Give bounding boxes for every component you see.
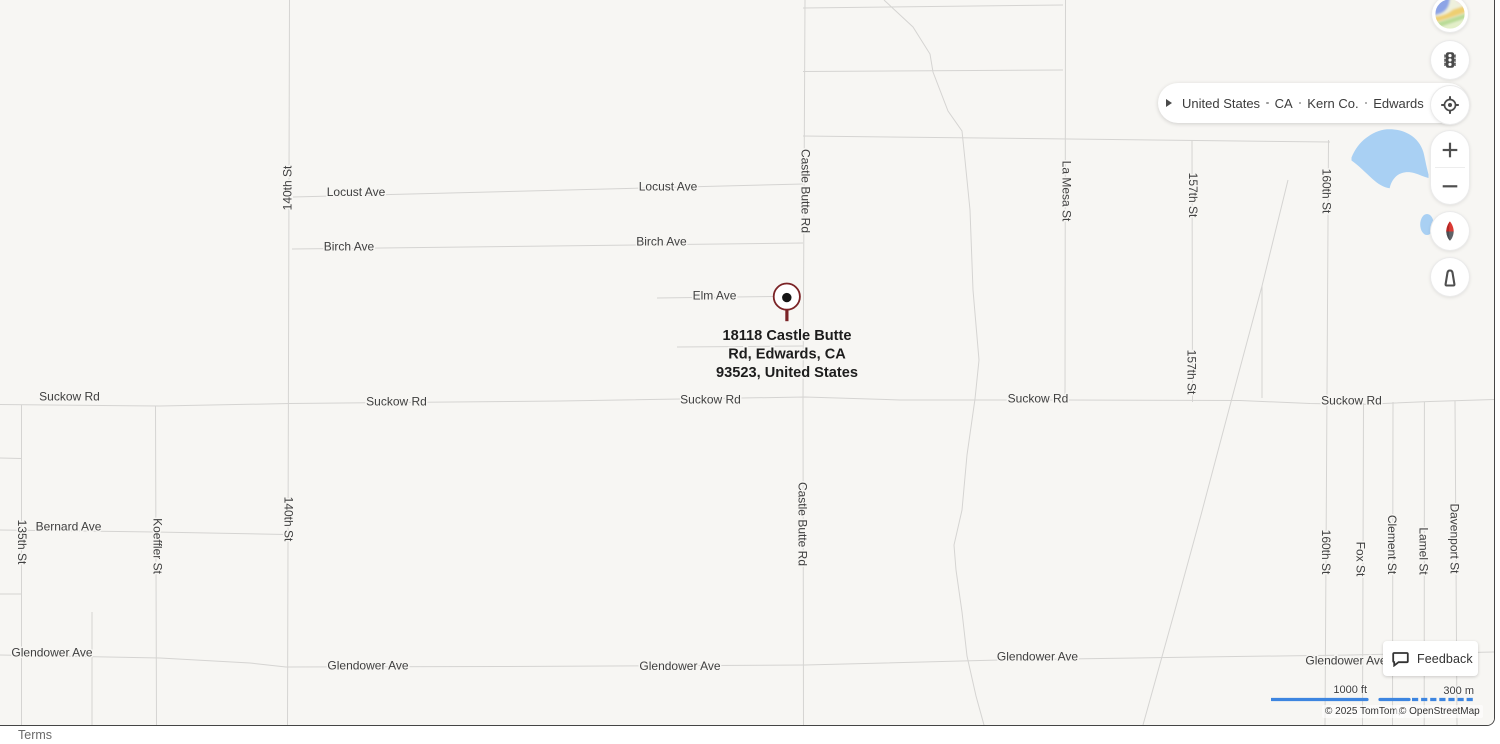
svg-text:157th St: 157th St [1186, 173, 1200, 218]
svg-text:Davenport St: Davenport St [1448, 503, 1462, 574]
svg-text:Birch Ave: Birch Ave [636, 235, 687, 249]
svg-text:Bernard Ave: Bernard Ave [36, 520, 102, 534]
svg-text:Castle Butte Rd: Castle Butte Rd [796, 482, 810, 566]
svg-text:135th St: 135th St [15, 520, 29, 565]
svg-text:Suckow Rd: Suckow Rd [39, 390, 100, 404]
svg-text:18118 Castle Butte: 18118 Castle Butte [723, 328, 852, 344]
svg-text:Suckow Rd: Suckow Rd [366, 395, 427, 409]
svg-text:La Mesa St: La Mesa St [1060, 161, 1074, 222]
svg-text:Glendower Ave: Glendower Ave [11, 646, 92, 660]
svg-text:140th St: 140th St [281, 165, 295, 210]
svg-text:Clement St: Clement St [1385, 515, 1399, 575]
svg-text:Glendower Ave: Glendower Ave [1305, 654, 1386, 668]
svg-text:Birch Ave: Birch Ave [324, 240, 375, 254]
svg-text:Locust Ave: Locust Ave [327, 185, 386, 199]
svg-text:Locust Ave: Locust Ave [639, 179, 698, 193]
svg-text:Glendower Ave: Glendower Ave [997, 650, 1078, 664]
svg-text:Castle Butte Rd: Castle Butte Rd [799, 149, 813, 233]
svg-text:93523, United States: 93523, United States [716, 365, 858, 381]
svg-text:Suckow Rd: Suckow Rd [1321, 394, 1382, 408]
svg-text:Suckow Rd: Suckow Rd [1008, 392, 1069, 406]
svg-text:Koeffler St: Koeffler St [151, 518, 165, 574]
svg-text:160th St: 160th St [1320, 169, 1334, 214]
svg-text:140th St: 140th St [282, 497, 296, 542]
svg-text:Glendower Ave: Glendower Ave [639, 659, 720, 673]
svg-text:Lamel St: Lamel St [1417, 527, 1431, 575]
svg-text:Fox St: Fox St [1354, 542, 1368, 577]
svg-text:Elm Ave: Elm Ave [693, 288, 737, 302]
svg-text:Rd, Edwards, CA: Rd, Edwards, CA [728, 347, 846, 363]
svg-text:Glendower Ave: Glendower Ave [327, 659, 408, 673]
svg-text:157th St: 157th St [1185, 350, 1199, 395]
svg-text:Suckow Rd: Suckow Rd [680, 393, 741, 407]
svg-text:160th St: 160th St [1319, 530, 1333, 575]
